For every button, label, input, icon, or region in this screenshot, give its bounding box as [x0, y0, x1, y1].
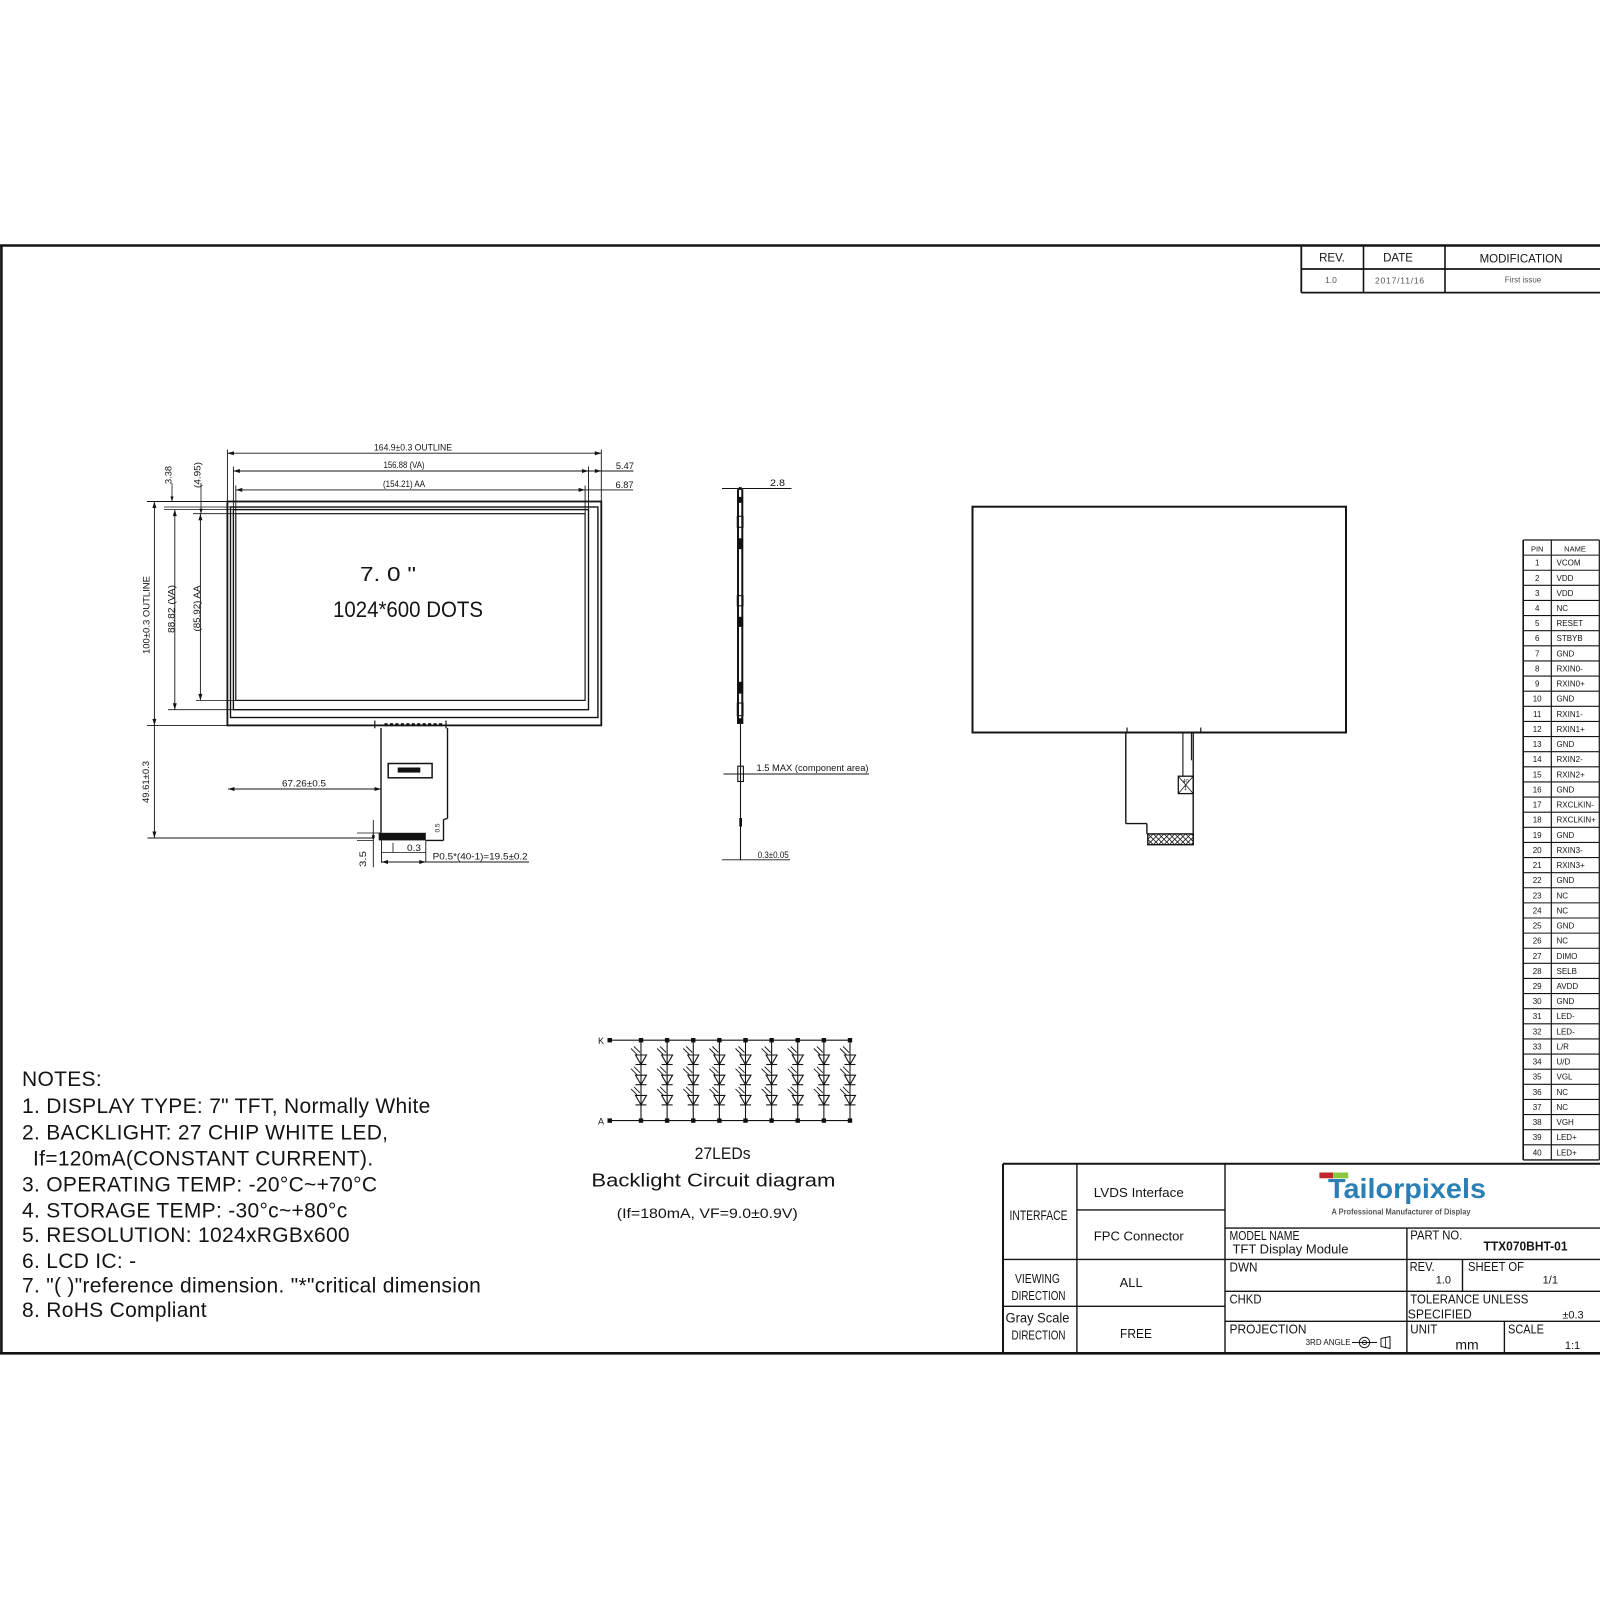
svg-text:GND: GND [1557, 922, 1575, 931]
svg-text:28: 28 [1533, 967, 1542, 976]
svg-text:5. RESOLUTION: 1024xRGBx600: 5. RESOLUTION: 1024xRGBx600 [22, 1224, 350, 1247]
svg-text:2: 2 [1535, 574, 1540, 583]
svg-text:6. LCD IC: -: 6. LCD IC: - [22, 1250, 136, 1273]
svg-text:30: 30 [1533, 997, 1542, 1006]
svg-text:6.87: 6.87 [616, 480, 634, 491]
svg-text:PROJECTION: PROJECTION [1230, 1323, 1307, 1337]
svg-text:LED-: LED- [1557, 1027, 1576, 1036]
svg-text:REV.: REV. [1410, 1260, 1435, 1274]
svg-text:SCALE: SCALE [1508, 1323, 1544, 1337]
svg-text:2.8: 2.8 [770, 478, 785, 488]
svg-text:8. RoHS Compliant: 8. RoHS Compliant [22, 1299, 207, 1322]
svg-text:2. BACKLIGHT: 27 CHIP WHITE LE: 2. BACKLIGHT: 27 CHIP WHITE LED, [22, 1122, 388, 1145]
svg-text:GND: GND [1557, 997, 1575, 1006]
svg-text:RXIN2+: RXIN2+ [1557, 770, 1586, 779]
svg-text:35: 35 [1533, 1073, 1542, 1082]
svg-text:TOLERANCE UNLESS: TOLERANCE UNLESS [1410, 1293, 1528, 1307]
svg-text:L/R: L/R [1557, 1042, 1570, 1051]
svg-text:27LEDs: 27LEDs [695, 1144, 751, 1163]
svg-text:DIRECTION: DIRECTION [1012, 1329, 1066, 1343]
svg-text:FPC Connector: FPC Connector [1094, 1230, 1184, 1244]
svg-text:If=120mA(CONSTANT CURRENT).: If=120mA(CONSTANT CURRENT). [33, 1148, 373, 1171]
svg-text:RXCLKIN-: RXCLKIN- [1557, 801, 1595, 810]
svg-text:25: 25 [1533, 922, 1542, 931]
svg-text:NOTES:: NOTES: [22, 1068, 102, 1091]
svg-text:DATE: DATE [1383, 253, 1413, 265]
svg-text:1:1: 1:1 [1565, 1340, 1580, 1352]
svg-text:NC: NC [1557, 604, 1569, 613]
svg-text:VCOM: VCOM [1557, 559, 1581, 568]
svg-text:RXCLKIN+: RXCLKIN+ [1557, 816, 1597, 825]
svg-text:11: 11 [1533, 710, 1542, 719]
svg-text:7: 7 [1535, 649, 1540, 658]
svg-text:23: 23 [1533, 891, 1542, 900]
svg-text:PART NO.: PART NO. [1410, 1229, 1462, 1243]
svg-text:33: 33 [1533, 1042, 1542, 1051]
svg-text:(If=180mA, VF=9.0±0.9V): (If=180mA, VF=9.0±0.9V) [617, 1205, 798, 1221]
svg-text:37: 37 [1533, 1103, 1542, 1112]
svg-text:19: 19 [1533, 831, 1542, 840]
svg-text:A Professional Manufacturer of: A Professional Manufacturer of Display [1332, 1208, 1472, 1217]
svg-text:DIRECTION: DIRECTION [1012, 1289, 1066, 1303]
svg-text:156.88 (VA): 156.88 (VA) [384, 460, 425, 471]
svg-text:±0.3: ±0.3 [1562, 1310, 1583, 1322]
svg-text:88.82 (VA): 88.82 (VA) [167, 585, 178, 633]
svg-text:31: 31 [1533, 1012, 1542, 1021]
svg-text:mm: mm [1455, 1337, 1478, 1353]
svg-text:MODIFICATION: MODIFICATION [1480, 254, 1563, 266]
svg-text:RXIN3+: RXIN3+ [1557, 861, 1586, 870]
svg-text:GND: GND [1557, 740, 1575, 749]
svg-text:36: 36 [1533, 1088, 1542, 1097]
svg-text:VGL: VGL [1557, 1073, 1574, 1082]
svg-text:REV.: REV. [1319, 253, 1345, 265]
svg-text:RXIN1+: RXIN1+ [1557, 725, 1586, 734]
svg-text:GND: GND [1557, 785, 1575, 794]
svg-text:(4.95): (4.95) [193, 462, 204, 488]
svg-text:Backlight Circuit diagram: Backlight Circuit diagram [591, 1171, 835, 1191]
svg-text:20: 20 [1533, 846, 1542, 855]
svg-text:1. DISPLAY TYPE: 7" TFT, Norma: 1. DISPLAY TYPE: 7" TFT, Normally White [22, 1095, 431, 1118]
svg-text:STBYB: STBYB [1557, 634, 1583, 643]
svg-text:24: 24 [1533, 906, 1542, 915]
svg-text:14: 14 [1533, 755, 1542, 764]
svg-text:12: 12 [1533, 725, 1542, 734]
svg-text:DIMO: DIMO [1557, 952, 1578, 961]
svg-text:4: 4 [1535, 604, 1540, 613]
svg-text:13: 13 [1533, 740, 1542, 749]
svg-text:5.47: 5.47 [616, 461, 634, 472]
svg-text:1: 1 [1184, 786, 1187, 792]
svg-text:MODEL NAME: MODEL NAME [1230, 1229, 1300, 1243]
svg-text:RXIN0+: RXIN0+ [1557, 680, 1586, 689]
svg-text:FREE: FREE [1120, 1327, 1152, 1341]
svg-text:49.61±0.3: 49.61±0.3 [141, 761, 152, 803]
svg-text:2017/11/16: 2017/11/16 [1375, 276, 1425, 286]
svg-text:LED+: LED+ [1557, 1133, 1578, 1142]
svg-text:18: 18 [1533, 816, 1542, 825]
svg-text:0.3±0.05: 0.3±0.05 [758, 850, 789, 860]
svg-text:GND: GND [1557, 831, 1575, 840]
svg-text:40: 40 [1533, 1148, 1542, 1157]
svg-text:(154.21) AA: (154.21) AA [383, 479, 426, 490]
svg-text:40: 40 [1183, 779, 1189, 785]
svg-text:3: 3 [1535, 589, 1540, 598]
svg-text:NC: NC [1557, 937, 1569, 946]
svg-text:Gray Scale: Gray Scale [1006, 1311, 1070, 1326]
svg-text:15: 15 [1533, 770, 1542, 779]
svg-text:CHKD: CHKD [1230, 1293, 1262, 1307]
svg-text:32: 32 [1533, 1027, 1542, 1036]
svg-text:A: A [598, 1117, 604, 1127]
svg-text:5: 5 [1535, 619, 1540, 628]
svg-text:17: 17 [1533, 801, 1542, 810]
svg-text:NC: NC [1557, 891, 1569, 900]
svg-text:27: 27 [1533, 952, 1542, 961]
svg-text:RXIN2-: RXIN2- [1557, 755, 1584, 764]
svg-text:1024*600 DOTS: 1024*600 DOTS [333, 597, 483, 622]
svg-text:GND: GND [1557, 695, 1575, 704]
svg-text:SELB: SELB [1557, 967, 1577, 976]
svg-text:TTX070BHT-01: TTX070BHT-01 [1484, 1239, 1568, 1254]
svg-text:INTERFACE: INTERFACE [1010, 1207, 1068, 1223]
svg-text:First issue: First issue [1505, 276, 1542, 285]
svg-text:10: 10 [1533, 695, 1542, 704]
svg-text:LED-: LED- [1557, 1012, 1576, 1021]
svg-text:PIN: PIN [1531, 545, 1544, 554]
svg-text:GND: GND [1557, 649, 1575, 658]
svg-text:38: 38 [1533, 1118, 1542, 1127]
svg-text:NC: NC [1557, 1103, 1569, 1112]
svg-text:RXIN3-: RXIN3- [1557, 846, 1584, 855]
svg-text:RXIN0-: RXIN0- [1557, 664, 1584, 673]
svg-text:67.26±0.5: 67.26±0.5 [282, 779, 326, 790]
svg-text:7. "( )"reference dimension. ": 7. "( )"reference dimension. "*"critical… [22, 1275, 481, 1298]
svg-text:1.0: 1.0 [1325, 275, 1337, 285]
svg-text:SHEET OF: SHEET OF [1468, 1260, 1524, 1274]
svg-text:U/D: U/D [1557, 1058, 1571, 1067]
svg-text:16: 16 [1533, 785, 1542, 794]
svg-text:3. OPERATING TEMP: -20°C~+70°C: 3. OPERATING TEMP: -20°C~+70°C [22, 1174, 377, 1197]
svg-text:LED+: LED+ [1557, 1148, 1578, 1157]
svg-text:1.5 MAX (component area): 1.5 MAX (component area) [757, 763, 869, 773]
svg-text:ALL: ALL [1120, 1276, 1143, 1290]
svg-text:AVDD: AVDD [1557, 982, 1579, 991]
svg-text:21: 21 [1533, 861, 1542, 870]
svg-text:NC: NC [1557, 1088, 1569, 1097]
svg-text:100±0.3 OUTLINE: 100±0.3 OUTLINE [142, 576, 153, 654]
svg-text:8: 8 [1535, 664, 1540, 673]
svg-text:RESET: RESET [1557, 619, 1584, 628]
svg-text:1: 1 [1535, 559, 1540, 568]
svg-text:7. 0 ": 7. 0 " [360, 564, 416, 586]
svg-text:GND: GND [1557, 876, 1575, 885]
svg-text:0.3: 0.3 [407, 843, 421, 853]
svg-text:1/1: 1/1 [1543, 1275, 1558, 1287]
svg-text:TFT Display Module: TFT Display Module [1233, 1243, 1349, 1257]
svg-text:164.9±0.3 OUTLINE: 164.9±0.3 OUTLINE [374, 443, 452, 454]
svg-text:VGH: VGH [1557, 1118, 1575, 1127]
svg-text:3.5: 3.5 [358, 851, 368, 867]
svg-text:RXIN1-: RXIN1- [1557, 710, 1584, 719]
svg-text:NAME: NAME [1564, 545, 1586, 554]
svg-text:6: 6 [1535, 634, 1540, 643]
svg-text:LVDS Interface: LVDS Interface [1094, 1186, 1184, 1200]
svg-text:UNIT: UNIT [1410, 1323, 1437, 1337]
svg-text:K: K [598, 1036, 604, 1046]
svg-text:29: 29 [1533, 982, 1542, 991]
svg-text:NC: NC [1557, 906, 1569, 915]
svg-text:9: 9 [1535, 680, 1540, 689]
svg-text:VIEWING: VIEWING [1015, 1272, 1060, 1286]
svg-text:(85.92) AA: (85.92) AA [192, 585, 203, 632]
svg-text:39: 39 [1533, 1133, 1542, 1142]
svg-text:DWN: DWN [1230, 1261, 1258, 1275]
svg-text:4. STORAGE TEMP: -30°c~+80°c: 4. STORAGE TEMP: -30°c~+80°c [22, 1200, 348, 1223]
svg-text:34: 34 [1533, 1058, 1542, 1067]
svg-text:SPECIFIED: SPECIFIED [1408, 1308, 1472, 1322]
svg-text:3.38: 3.38 [164, 466, 175, 484]
svg-text:Tailorpixels: Tailorpixels [1328, 1173, 1486, 1204]
svg-text:3RD ANGLE: 3RD ANGLE [1306, 1337, 1351, 1347]
svg-text:1.0: 1.0 [1436, 1275, 1451, 1287]
svg-text:VDD: VDD [1557, 589, 1574, 598]
svg-text:VDD: VDD [1557, 574, 1574, 583]
svg-text:26: 26 [1533, 937, 1542, 946]
svg-text:P0.5*(40-1)=19.5±0.2: P0.5*(40-1)=19.5±0.2 [433, 851, 528, 862]
svg-text:22: 22 [1533, 876, 1542, 885]
svg-text:0.5: 0.5 [436, 823, 442, 833]
